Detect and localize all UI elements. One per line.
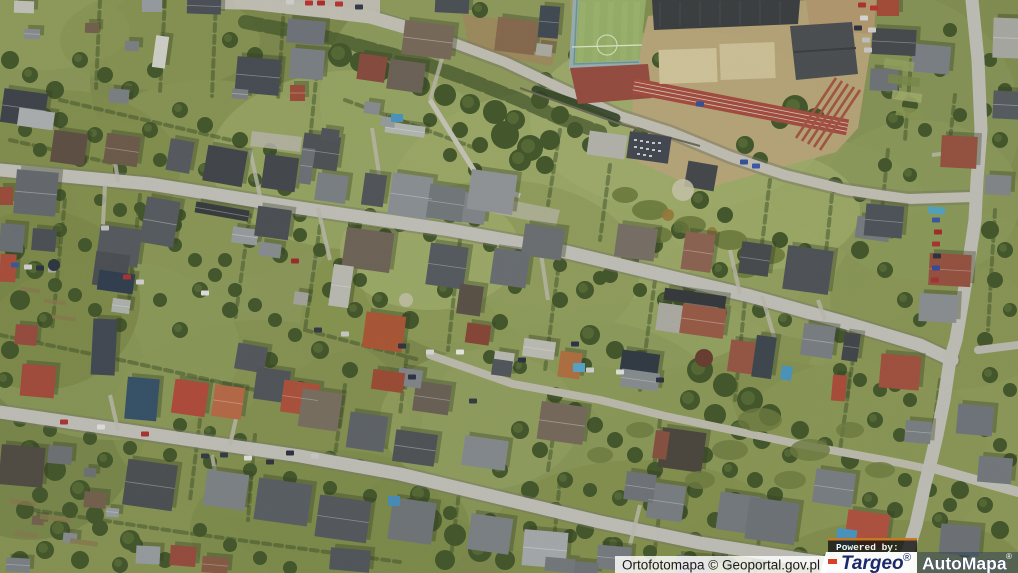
- svg-text:AutoMapa: AutoMapa: [922, 554, 1007, 573]
- svg-text:Ortofotomapa © Geoportal.gov.p: Ortofotomapa © Geoportal.gov.pl: [622, 558, 820, 573]
- svg-text:®: ®: [903, 552, 911, 564]
- svg-text:®: ®: [1006, 552, 1012, 561]
- svg-text:Targeo: Targeo: [841, 553, 904, 573]
- svg-text:Powered by:: Powered by:: [836, 542, 899, 553]
